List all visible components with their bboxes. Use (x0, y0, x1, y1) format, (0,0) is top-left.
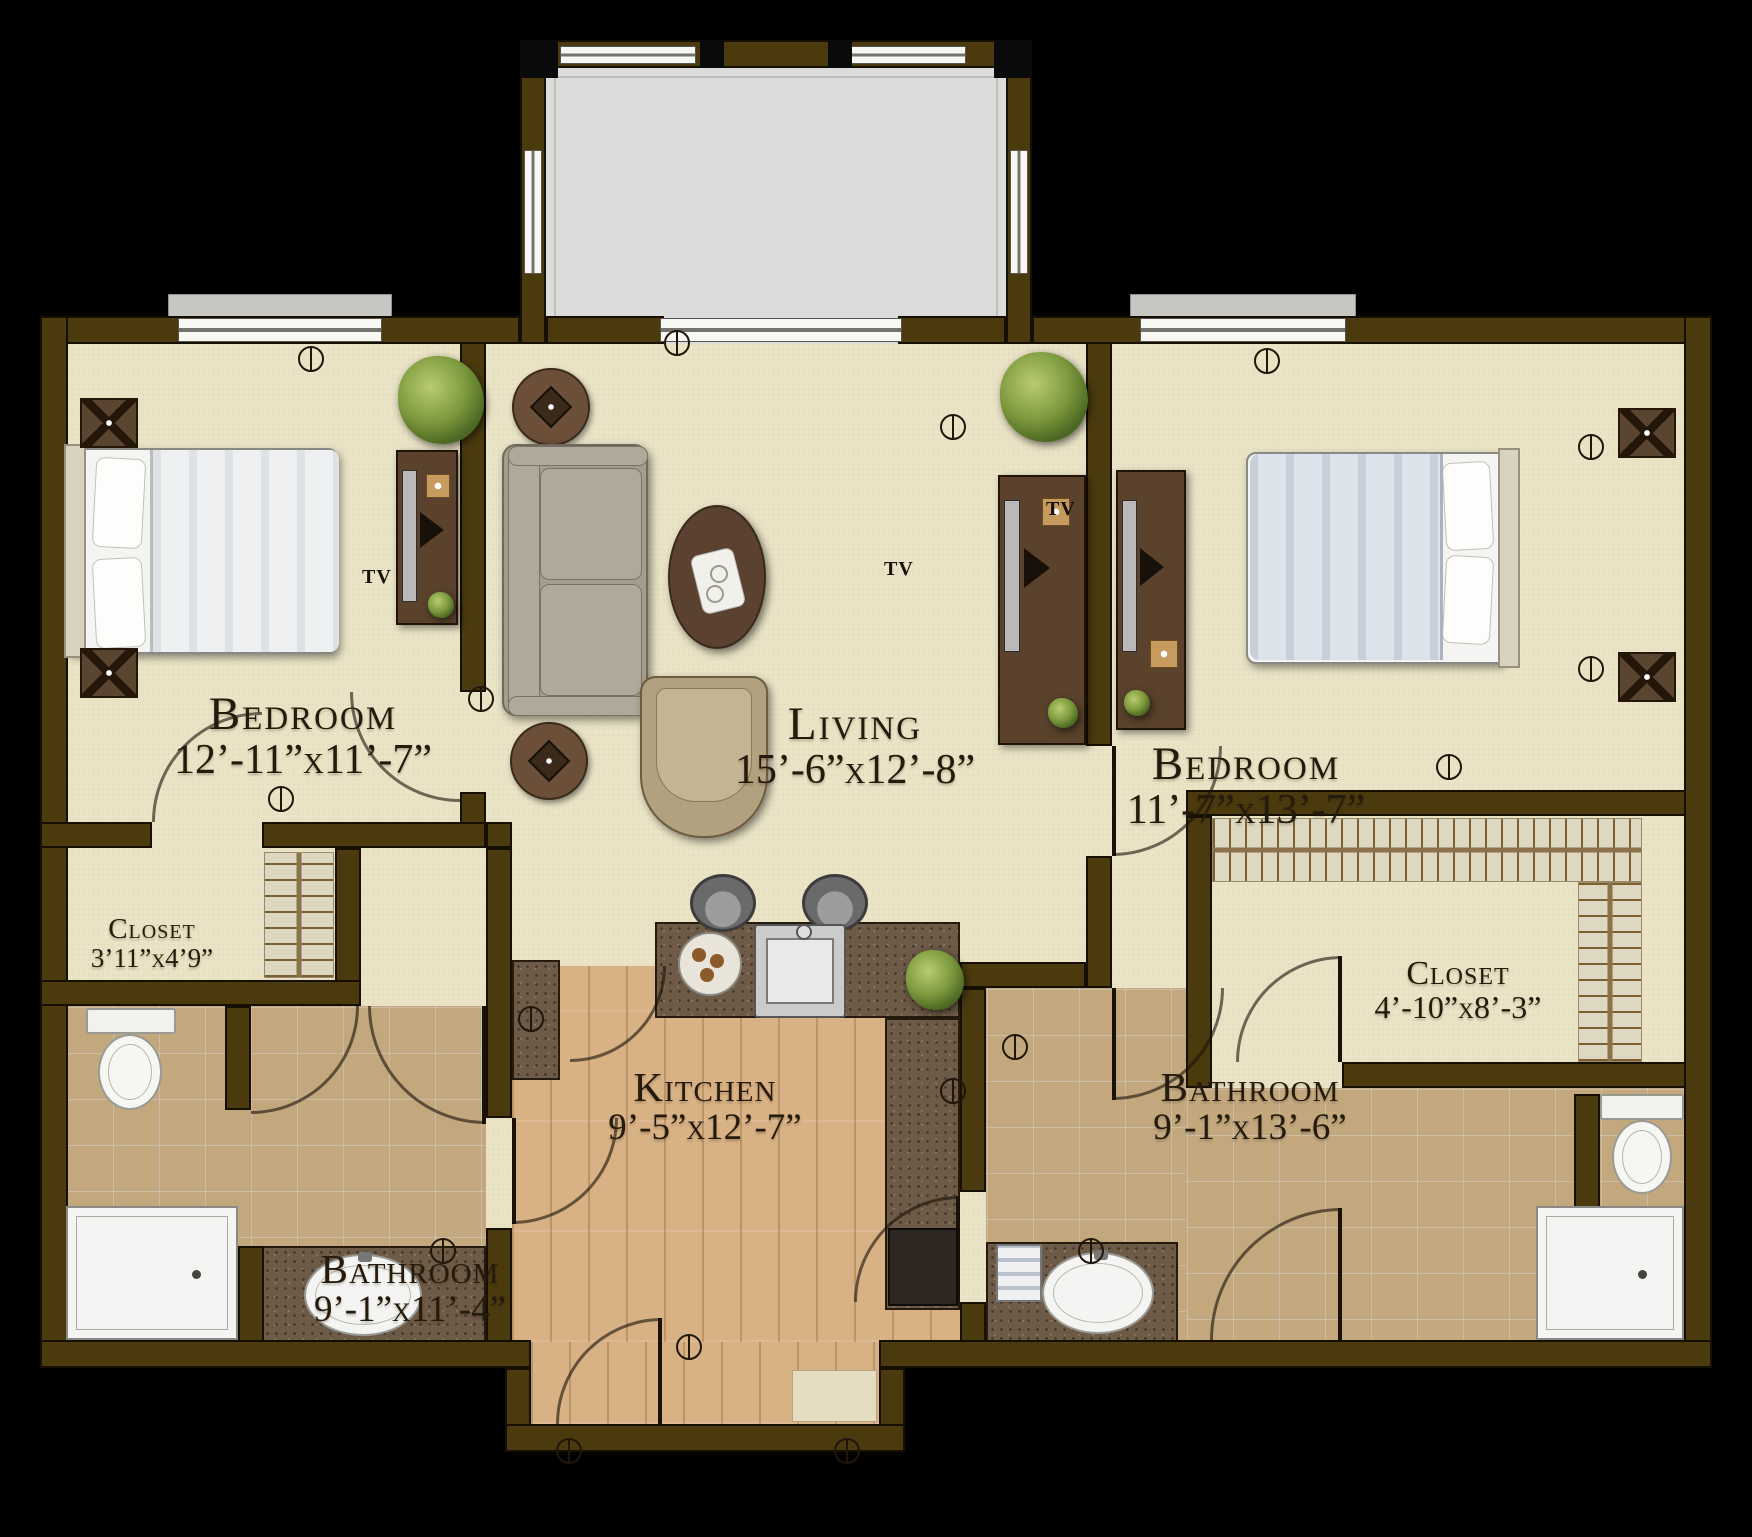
light-fixture-symbol (268, 786, 294, 812)
patio-window-top-left (560, 46, 696, 64)
room-dims: 11’-7”x13’-7” (1127, 789, 1366, 833)
light-fixture-symbol (518, 1006, 544, 1032)
nightstand-lamp-icon (1618, 652, 1676, 702)
fruit (700, 968, 714, 982)
light-fixture-symbol (1002, 1034, 1028, 1060)
light-fixture-symbol (1578, 656, 1604, 682)
tv-label-living: TV (884, 558, 914, 581)
plant (398, 356, 484, 444)
room-label-bedroom-left: Bedroom 12’-11”x11’-7” (174, 690, 432, 783)
wall-living-bath-right (960, 962, 1086, 988)
sofa-back (508, 450, 540, 712)
patio-window-right (1010, 150, 1028, 274)
shower-pan-line (1546, 1216, 1674, 1330)
nightstand-lamp-icon (80, 648, 138, 698)
wall-top-stub-right (898, 316, 1006, 344)
room-dims: 9’-5”x12’-7” (608, 1109, 801, 1147)
wall-toilet-alcove-right (1574, 1094, 1600, 1212)
room-name: Bathroom (314, 1248, 506, 1291)
closet-right-hangers-side (1578, 882, 1642, 1062)
towel-stack (996, 1244, 1042, 1302)
room-name: Bathroom (1153, 1066, 1346, 1109)
wall-closet-left-top-b (262, 822, 486, 848)
window-sill-left (168, 294, 392, 318)
room-name: Closet (91, 914, 213, 944)
patio-window-left (524, 150, 542, 274)
light-fixture-symbol (1436, 754, 1462, 780)
window-sill-right (1130, 294, 1356, 318)
window-bedroom-left (178, 318, 382, 342)
stove (888, 1228, 958, 1306)
patio-post-top-left (520, 40, 558, 78)
room-label-closet-right: Closet 4’-10”x8’-3” (1375, 956, 1542, 1025)
light-fixture-symbol (468, 686, 494, 712)
light-fixture-symbol (556, 1438, 582, 1464)
window-bedroom-right (1140, 318, 1346, 342)
patio-post-top-right (994, 40, 1032, 78)
room-name: Bedroom (174, 690, 432, 739)
plant-small (428, 592, 454, 618)
plant-small (1124, 690, 1150, 716)
light-fixture-symbol (664, 330, 690, 356)
toilet-tank (1600, 1094, 1684, 1120)
room-name: Closet (1375, 956, 1542, 991)
wall-right (1684, 316, 1712, 1368)
light-fixture-symbol (298, 346, 324, 372)
toilet-tank (86, 1008, 176, 1034)
entry-mat (792, 1370, 877, 1422)
sofa (502, 444, 648, 716)
plant (906, 950, 964, 1010)
patio-post-mid-left (700, 40, 724, 68)
room-name: Living (735, 700, 975, 749)
wall-top-right (1032, 316, 1712, 344)
toilet-bowl (98, 1034, 162, 1110)
console-speaker-icon (1150, 640, 1178, 668)
pillow (1442, 555, 1495, 645)
door-leaf (1112, 988, 1116, 1100)
faucet-icon (796, 924, 812, 940)
tv-screen (1004, 500, 1020, 652)
toilet-seat (108, 1044, 152, 1100)
nightstand-lamp-icon (80, 398, 138, 448)
door-leaf (512, 1118, 516, 1224)
room-label-bathroom-right: Bathroom 9’-1”x13’-6” (1153, 1066, 1346, 1147)
light-fixture-symbol (1254, 348, 1280, 374)
room-dims: 4’-10”x8’-3” (1375, 991, 1542, 1024)
wall-bottom-right (879, 1340, 1712, 1368)
sofa-cushion (540, 584, 642, 696)
pillow (92, 457, 147, 549)
room-name: Bedroom (1127, 740, 1366, 789)
light-fixture-symbol (676, 1334, 702, 1360)
kitchen-sink-basin (766, 938, 834, 1004)
sofa-arm (508, 696, 648, 716)
light-fixture-symbol (1578, 434, 1604, 460)
sink-basin-line (1053, 1263, 1143, 1323)
door-leaf (1112, 746, 1116, 856)
sofa-arm (508, 446, 648, 466)
coffee-table-decor (706, 585, 724, 603)
wall-vanity-stub-left (238, 1246, 264, 1342)
bed-right-blanket (1250, 454, 1443, 660)
room-dims: 15’-6”x12’-8” (735, 749, 975, 793)
light-fixture-symbol (834, 1438, 860, 1464)
light-fixture-symbol (1078, 1238, 1104, 1264)
plant-small (1048, 698, 1078, 728)
room-label-kitchen: Kitchen 9’-5”x12’-7” (608, 1066, 801, 1147)
pillow (92, 557, 147, 649)
room-label-bathroom-left: Bathroom 9’-1”x11’-4” (314, 1248, 506, 1329)
wall-bath-left-top (40, 980, 361, 1006)
room-label-living: Living 15’-6”x12’-8” (735, 700, 975, 793)
bed-right-headboard (1498, 448, 1520, 668)
toilet-bowl (1612, 1120, 1672, 1194)
coffee-table (668, 505, 766, 649)
floor-plan: Bedroom 12’-11”x11’-7” Living 15’-6”x12’… (0, 0, 1752, 1537)
tv-screen (1122, 500, 1137, 652)
shower-pan-line (76, 1216, 228, 1330)
door-leaf (482, 1006, 486, 1124)
room-dims: 12’-11”x11’-7” (174, 739, 432, 783)
room-label-bedroom-right: Bedroom 11’-7”x13’-7” (1127, 740, 1366, 833)
wall-bedroom-right-west (1086, 342, 1112, 746)
closet-left-hangers (264, 852, 334, 978)
fruit (692, 948, 706, 962)
plant (1000, 352, 1088, 442)
tv-screen (402, 470, 417, 602)
light-fixture-symbol (940, 1078, 966, 1104)
bed-left-headboard (64, 444, 86, 658)
light-fixture-symbol (940, 414, 966, 440)
nightstand-lamp-icon (1618, 408, 1676, 458)
patio-post-mid-right (828, 40, 852, 68)
sofa-cushion (540, 468, 642, 580)
pillow (1442, 461, 1495, 551)
wall-closet-right-bottom (1342, 1062, 1686, 1088)
tv-label-bedroom-right: TV (1046, 498, 1076, 521)
room-dims: 9’-1”x13’-6” (1153, 1109, 1346, 1147)
wall-bottom-left (40, 1340, 531, 1368)
patio-floor (546, 68, 1006, 344)
room-dims: 9’-1”x11’-4” (314, 1291, 506, 1329)
room-name: Kitchen (608, 1066, 801, 1109)
bar-stool (690, 874, 756, 932)
shower-right (1536, 1206, 1684, 1340)
toilet-seat (1622, 1130, 1662, 1184)
room-dims: 3’11”x4’9” (91, 944, 213, 972)
console-speaker-icon (426, 474, 450, 498)
kitchen-sink (754, 924, 846, 1018)
door-leaf (1338, 1208, 1342, 1340)
wall-closet-left-top-a (40, 822, 152, 848)
wall-hall-left (486, 822, 512, 848)
patio-sliding-door (660, 318, 902, 342)
shower-drain (192, 1270, 201, 1279)
room-label-closet-left: Closet 3’11”x4’9” (91, 914, 213, 972)
wall-toilet-alcove-left (225, 1006, 251, 1110)
fruit-bowl (678, 932, 742, 996)
door-leaf (658, 1318, 662, 1424)
wall-kitchen-east-b (960, 1302, 986, 1342)
shower-left (66, 1206, 238, 1340)
door-leaf (1338, 956, 1342, 1062)
wall-bedroom-right-west-stub (1086, 856, 1112, 988)
wall-kitchen-west-a (486, 848, 512, 1118)
bathroom-sink-right (1042, 1252, 1154, 1334)
patio-border-line (554, 76, 998, 336)
tv-label-bedroom-left: TV (362, 566, 392, 589)
fruit (710, 954, 724, 968)
bed-left-blanket (150, 450, 339, 652)
wall-top-stub-left (546, 316, 664, 344)
shower-drain (1638, 1270, 1647, 1279)
coffee-table-decor (710, 565, 728, 583)
